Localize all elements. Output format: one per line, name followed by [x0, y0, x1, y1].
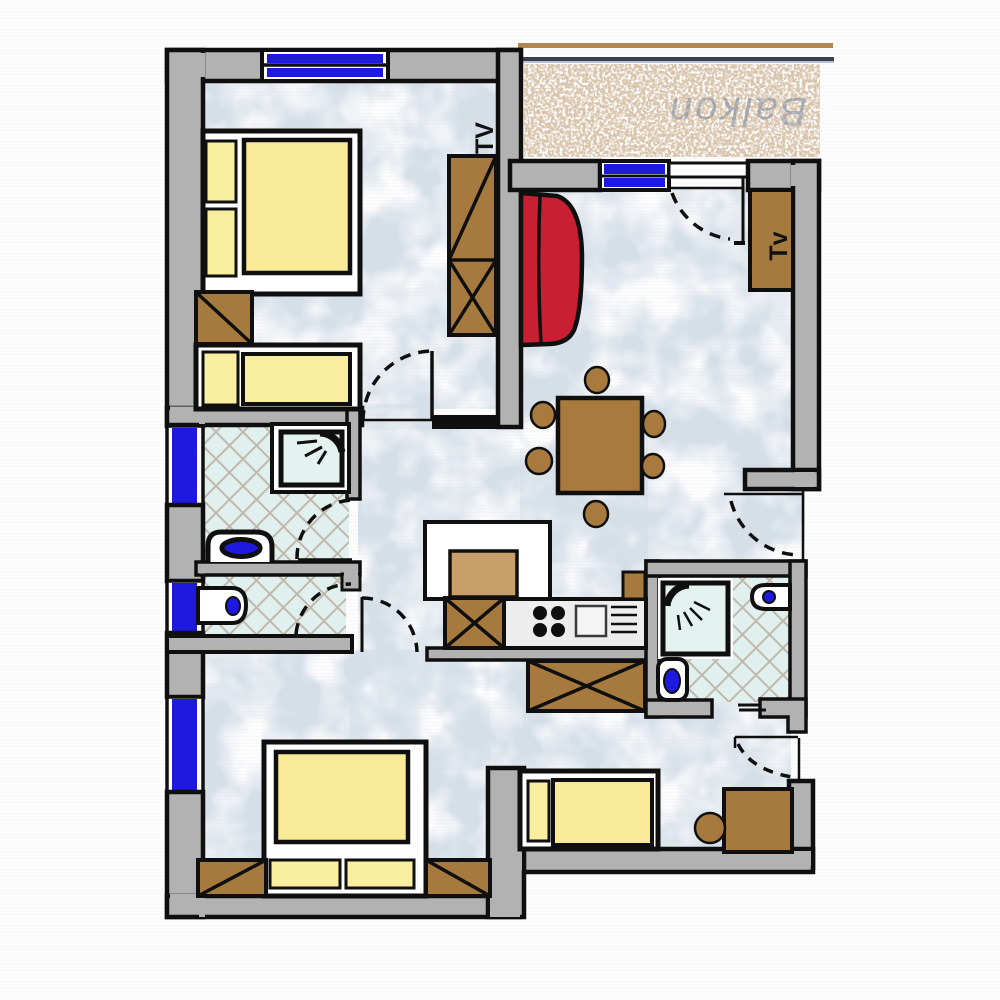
svg-text:Tv: Tv [765, 231, 793, 260]
svg-text:TV: TV [471, 122, 499, 154]
svg-text:Balkon: Balkon [667, 89, 807, 133]
